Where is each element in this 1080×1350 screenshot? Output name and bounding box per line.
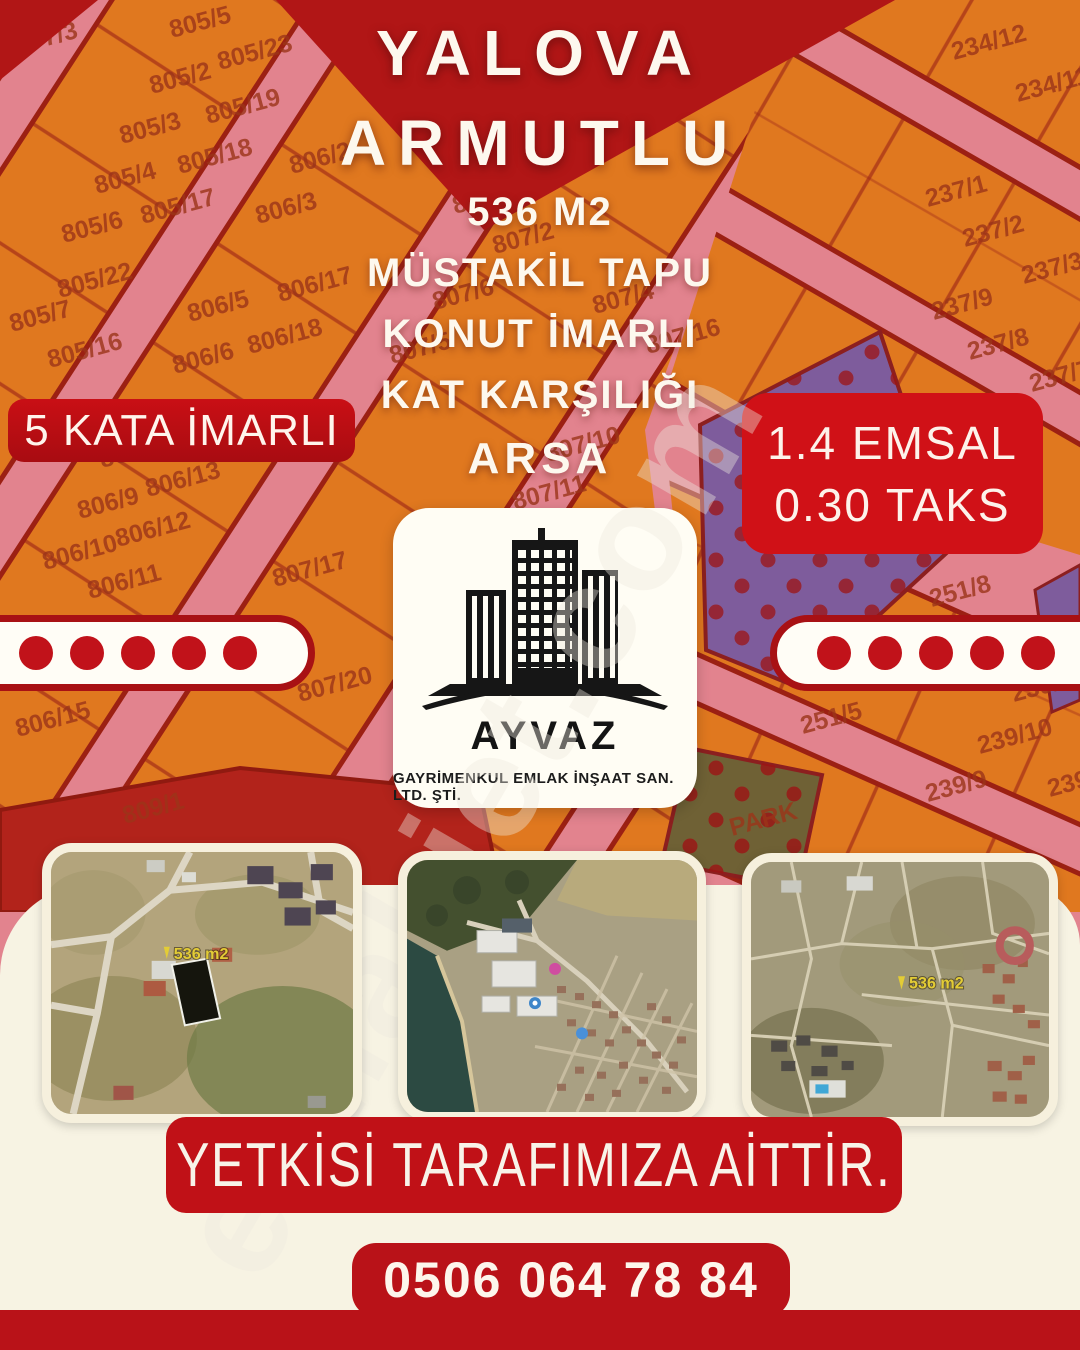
dot-row bbox=[817, 636, 1055, 670]
parcel-area-label: 536 m2 bbox=[909, 974, 964, 992]
dot bbox=[868, 636, 902, 670]
dot bbox=[223, 636, 257, 670]
decorative-dots-pill-left bbox=[0, 615, 315, 691]
satellite-photo-town bbox=[398, 851, 706, 1121]
parcel-area-label: 536 m2 bbox=[174, 945, 229, 963]
detail-deed: MÜSTAKİL TAPU bbox=[367, 251, 713, 296]
decorative-dots-pill-right bbox=[770, 615, 1080, 691]
emsal-value: 1.4 EMSAL bbox=[767, 416, 1018, 470]
satellite-photo-parcel-closeup: 536 m2 bbox=[42, 843, 362, 1123]
title-line-1: YALOVA bbox=[0, 16, 1080, 90]
bottom-red-bar bbox=[0, 1310, 1080, 1350]
floors-badge: 5 KATA İMARLI bbox=[8, 399, 355, 462]
dot bbox=[172, 636, 206, 670]
phone-number: 0506 064 78 84 bbox=[383, 1251, 759, 1309]
floors-badge-label: 5 KATA İMARLI bbox=[24, 406, 339, 456]
dot bbox=[919, 636, 953, 670]
dot bbox=[70, 636, 104, 670]
satellite-image bbox=[407, 860, 697, 1112]
real-estate-flyer: 77/3805/5805/23805/2805/19805/3805/18806… bbox=[0, 0, 1080, 1350]
detail-area: 536 M2 bbox=[467, 190, 612, 235]
dot bbox=[970, 636, 1004, 670]
authority-banner: YETKİSİ TARAFIMIZA AİTTİR. bbox=[166, 1117, 902, 1213]
dot bbox=[817, 636, 851, 670]
dot bbox=[121, 636, 155, 670]
phone-banner: 0506 064 78 84 bbox=[352, 1243, 790, 1317]
title-line-2: ARMUTLU bbox=[0, 106, 1080, 180]
satellite-image: 536 m2 bbox=[751, 862, 1049, 1117]
dot bbox=[1021, 636, 1055, 670]
dot bbox=[19, 636, 53, 670]
taks-value: 0.30 TAKS bbox=[774, 478, 1010, 532]
satellite-image: 536 m2 bbox=[51, 852, 353, 1114]
authority-text: YETKİSİ TARAFIMIZA AİTTİR. bbox=[177, 1130, 892, 1201]
satellite-photo-wide-area: 536 m2 bbox=[742, 853, 1058, 1126]
dot-row bbox=[19, 636, 257, 670]
